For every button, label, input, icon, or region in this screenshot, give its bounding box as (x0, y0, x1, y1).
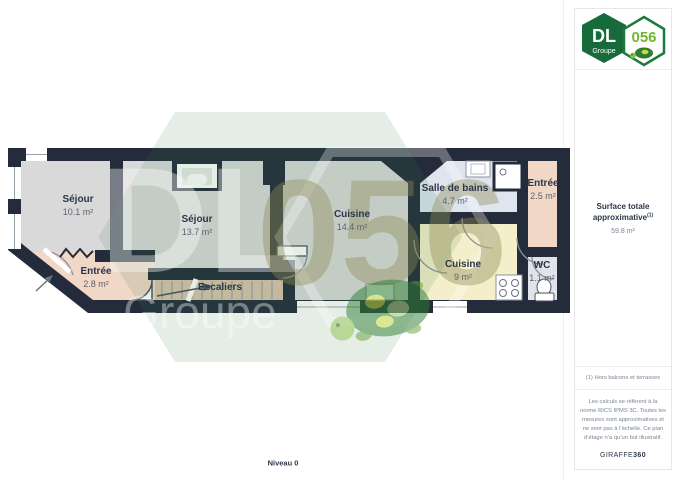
logo-dl-text: DL (592, 26, 616, 46)
surface-title: Surface totale approximative(1) (579, 201, 667, 223)
dl-groupe-056-logo: DL Groupe 056 (577, 11, 669, 67)
floor-entree-25 (528, 161, 557, 247)
logo: DL Groupe 056 (575, 9, 671, 70)
giraffe360-brand: GIRAFFE360 (580, 452, 666, 459)
watermark-groupe-text: Groupe (123, 286, 276, 338)
surface-summary: Surface totale approximative(1) 59.8 m² (575, 70, 671, 366)
brand-name: GIRAFFE (600, 452, 633, 459)
surface-title-text: Surface totale approximative (593, 202, 650, 222)
disclaimer-text: Les calculs se réfèrent à la norme RICS … (580, 398, 666, 443)
floor-sejour-10 (21, 161, 110, 252)
surface-value: 59.8 m² (611, 228, 635, 235)
logo-groupe-text: Groupe (592, 48, 615, 55)
level-label: Niveau 0 (268, 459, 299, 468)
footnote: (1) Hors balcons et terrasses (575, 366, 671, 389)
disclaimer: Les calculs se réfèrent à la norme RICS … (575, 389, 671, 469)
logo-number-text: 056 (631, 29, 656, 46)
info-panel: DL Groupe 056 Surface totale approximati… (574, 8, 672, 470)
watermark: DL Groupe 056 (98, 112, 507, 362)
floorplan-page: DL Groupe 056 Séjour 10.1 m² Séjour 13.7… (0, 0, 678, 480)
brand-number: 360 (633, 452, 646, 459)
surface-note-ref: (1) (647, 212, 653, 218)
